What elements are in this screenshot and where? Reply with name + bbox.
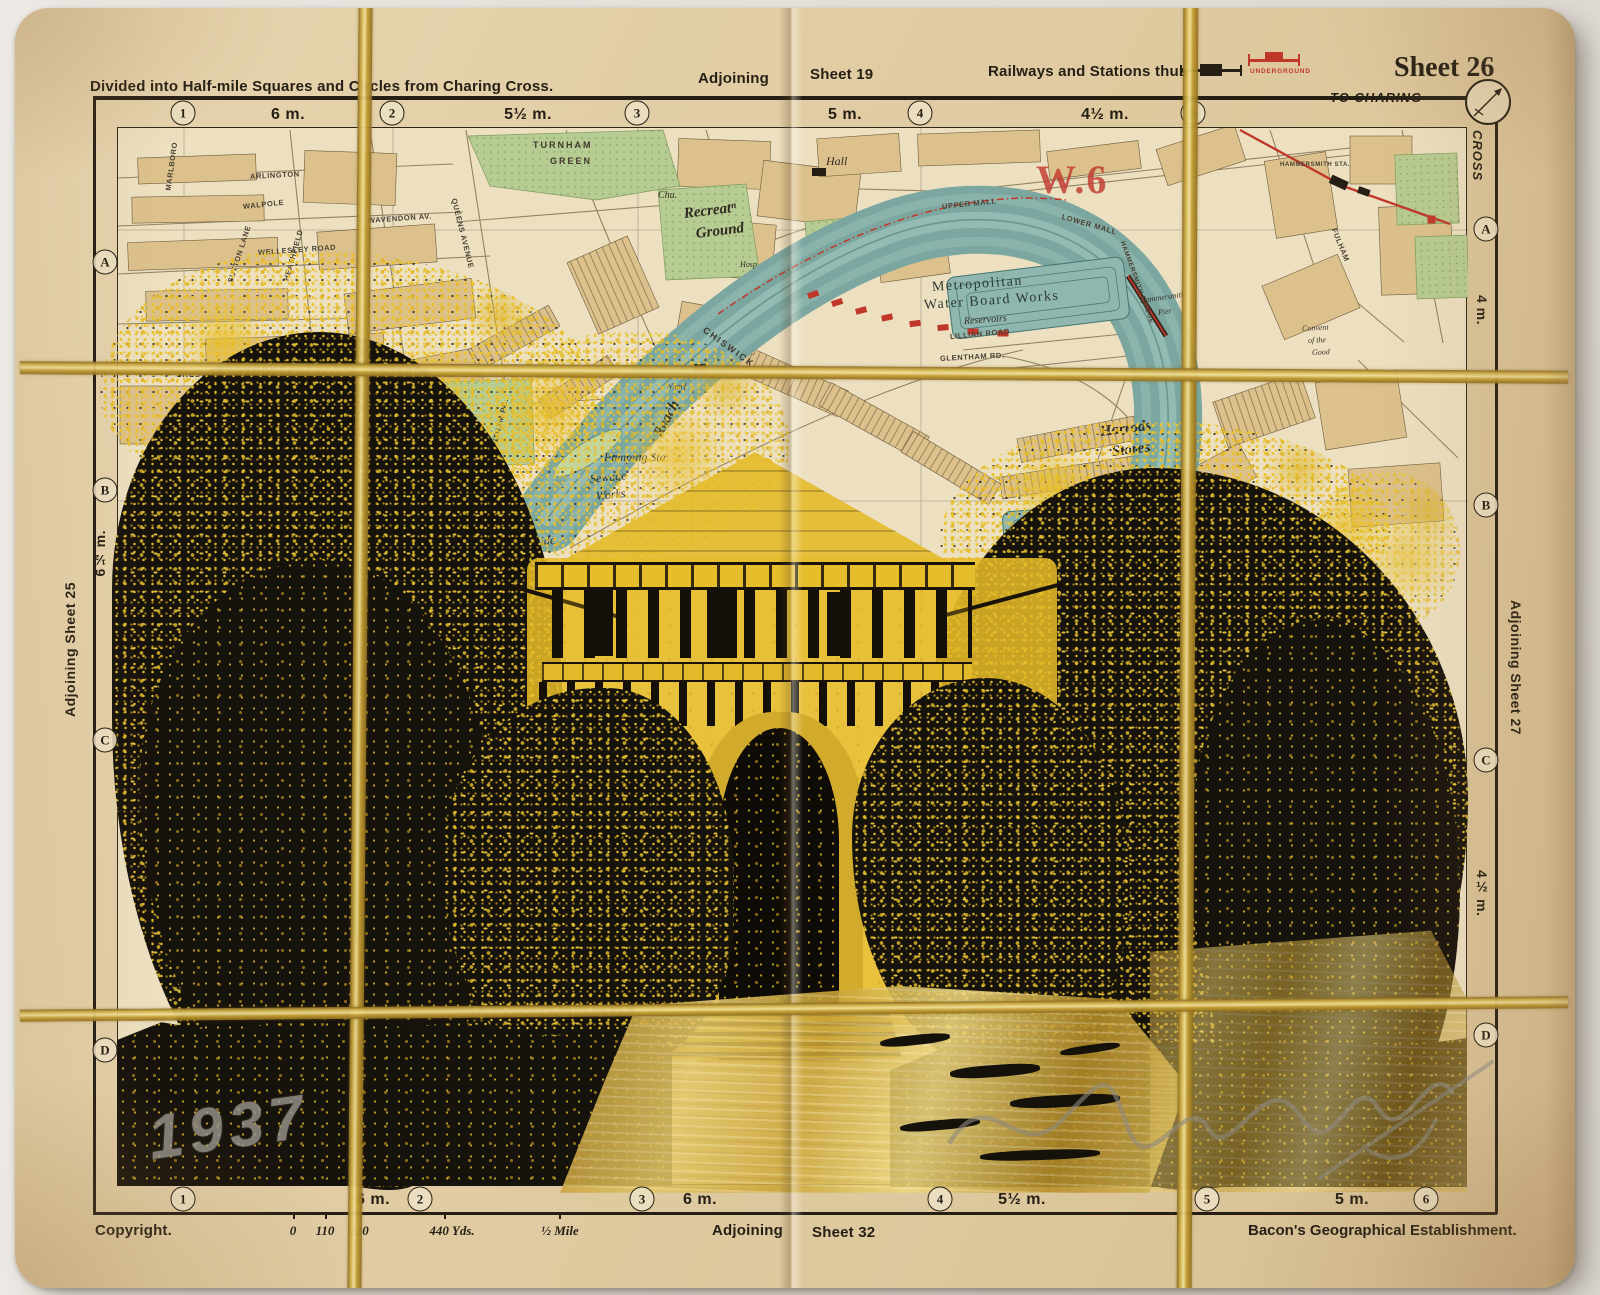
upper-windows [552,590,972,658]
header-adjoining: Adjoining [698,70,769,87]
grid-column-marker: 3 [625,101,650,126]
grid-column-marker: 4 [928,1187,953,1212]
grid-column-marker: 2 [408,1187,433,1212]
header-railways-legend: Railways and Stations thus [988,63,1187,80]
grid-column-marker: 1 [171,1187,196,1212]
cross-label: CROSS [1470,130,1485,181]
scale-tick [559,1212,561,1219]
publisher-label: Bacon's Geographical Establishment. [1248,1222,1517,1239]
adjoining-sheet-left: Adjoining Sheet 25 [62,582,78,717]
place-label: Hall [826,154,847,169]
window [827,592,851,656]
mile-marker: 5 m. [1335,1191,1369,1209]
mile-marker: 4½ m. [1474,870,1490,917]
scale-tick [444,1212,446,1219]
underground-label: UNDERGROUND [1250,68,1311,75]
underground-symbol-icon: UNDERGROUND [1248,50,1306,80]
hospital-label: Hosp [740,260,757,269]
pier-label: Pier [1157,306,1172,317]
station-label: HAMMERSMITH STA. [1280,162,1350,168]
footer-sheet-32: Sheet 32 [812,1224,875,1241]
mile-marker: 6 m. [683,1191,717,1209]
frame-right-rule [1495,96,1498,1214]
convent-label: Convent [1302,323,1329,333]
scale-bar [293,1212,560,1214]
grid-column-marker: 1 [171,101,196,126]
place-label: GREEN [550,156,592,166]
scale-tick [293,1212,295,1219]
mile-marker: 6 m. [271,106,305,124]
compass-icon [1464,78,1512,131]
mile-marker: 5 m. [828,106,862,124]
mile-marker: 6½ m. [92,530,108,577]
grid-row-marker: A [93,250,118,275]
mile-marker: 5½ m. [998,1191,1046,1209]
grid-row-marker: C [1474,748,1499,773]
header-sheet-19: Sheet 19 [810,66,873,83]
adjoining-sheet-right: Adjoining Sheet 27 [1508,600,1524,735]
scale-tick [325,1212,327,1219]
copyright-label: Copyright. [95,1222,172,1239]
mile-marker: 5½ m. [504,106,552,124]
grid-column-marker: 4 [908,101,933,126]
grid-column-marker: 5 [1195,1187,1220,1212]
convent-label: Good [1312,347,1330,357]
grid-row-marker: D [1474,1023,1499,1048]
grid-row-marker: D [93,1038,118,1063]
pediment [557,452,953,564]
scale-label: 440 Yds. [429,1223,474,1239]
header-divided-note: Divided into Half-mile Squares and Circl… [90,78,553,95]
mile-marker: 4 m. [1474,295,1490,325]
page-fold [779,8,803,1288]
frieze [542,662,972,682]
scale-label: 0 [290,1223,297,1239]
window [707,588,737,658]
grid-column-marker: 3 [630,1187,655,1212]
grid-column-marker: 6 [1414,1187,1439,1212]
place-label: TURNHAM [533,140,593,150]
architrave [535,562,975,590]
mile-marker: 4½ m. [1081,106,1129,124]
grid-row-marker: B [93,478,118,503]
paper-edge-shade [1545,8,1575,1288]
convent-label: of the [1308,335,1326,345]
grid-row-marker: A [1474,217,1499,242]
church-label: Chu. [658,190,677,201]
grid-row-marker: B [1474,493,1499,518]
map-sheet: Divided into Half-mile Squares and Circl… [15,8,1575,1288]
postal-district-label: W.6 [1036,156,1108,203]
grid-column-marker: 2 [380,101,405,126]
footer-adjoining: Adjoining [712,1222,783,1239]
scale-label: 110 [316,1223,335,1239]
grid-row-marker: C [93,728,118,753]
scale-label: ½ Mile [541,1223,579,1239]
photo-of-artwork: Divided into Half-mile Squares and Circl… [0,0,1600,1295]
window [587,590,613,656]
